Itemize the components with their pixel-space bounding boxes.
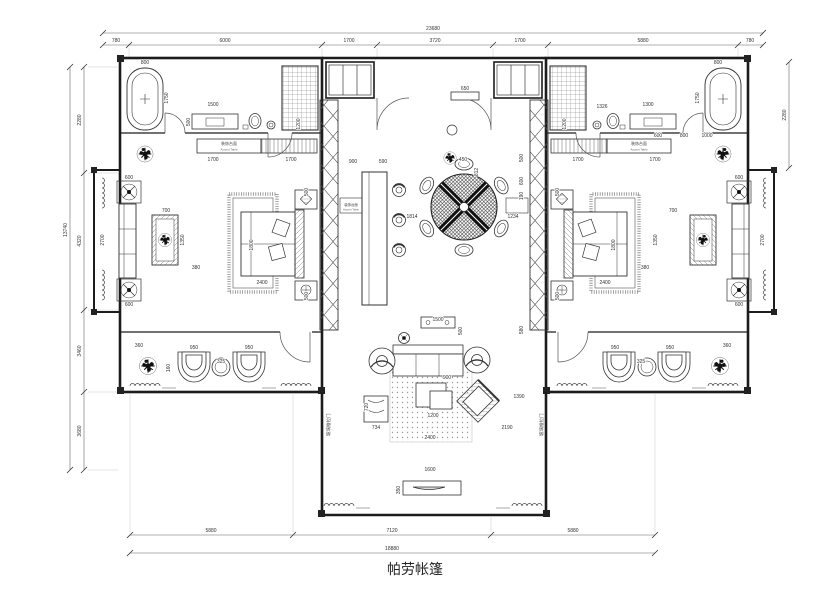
round-chair: [464, 347, 490, 373]
dimension-label: 780: [746, 38, 755, 44]
dimension-label: 1500: [432, 317, 443, 323]
dimension-label: 720: [364, 403, 370, 412]
dimension-label: 812: [474, 168, 480, 177]
dimension-label: 360: [723, 343, 732, 349]
accent-table-label-center: 装饰台面: [344, 202, 358, 207]
dimension-label: 1200: [427, 413, 438, 419]
dimension-label: 18880: [385, 546, 399, 552]
accent-table-sublabel-left: Accent Table: [220, 148, 237, 152]
round-chair: [369, 348, 395, 374]
floor-plan-drawing: 装饰台面 Accent Table 装饰台面 Accent Table 装饰台面…: [0, 0, 837, 592]
tv-cabinet: [403, 481, 461, 495]
dimension-label: 1700: [649, 157, 660, 163]
dimension-label: 500: [186, 118, 192, 127]
dimension-label: 500: [304, 188, 310, 197]
dimension-label: 3680: [77, 425, 83, 436]
dimension-label: 1600: [424, 467, 435, 473]
dimension-label: 325: [217, 359, 226, 365]
dimension-label: 800: [680, 133, 689, 139]
dimension-label: 500: [555, 188, 561, 197]
sliding-door-label-right: 玻璃推拉门: [538, 413, 545, 436]
dimension-label: 2400: [256, 280, 267, 286]
dimension-label: 4320: [77, 235, 83, 246]
dimension-label: 2190: [501, 425, 512, 431]
dimension-label: 600: [654, 133, 663, 139]
dimension-label: 500: [304, 292, 310, 301]
dimension-label: 1350: [180, 234, 186, 245]
dimension-label: 800: [714, 60, 723, 66]
dimension-label: 1500: [207, 102, 218, 108]
dimension-label: 950: [611, 345, 620, 351]
dimension-label: 700: [162, 208, 171, 214]
dimension-label: 500: [519, 154, 525, 163]
dimension-label: 450: [459, 157, 468, 163]
dining-set: [417, 158, 511, 256]
dimension-label: 2400: [599, 280, 610, 286]
dimension-label: 1700: [207, 157, 218, 163]
dimension-label: 2400: [424, 435, 435, 441]
dimension-label: 380: [192, 265, 201, 271]
dimension-label: 2280: [782, 109, 788, 120]
dimension-label: 2700: [760, 234, 766, 245]
dimension-label: 380: [641, 265, 650, 271]
dimension-label: 23680: [426, 26, 440, 32]
curtain-icon: [324, 504, 354, 507]
dimension-label: 1200: [562, 118, 568, 129]
sofa: [393, 345, 463, 376]
dimension-label: 1800: [611, 239, 617, 250]
dimension-label: 3460: [77, 345, 83, 356]
dimension-ticks: [67, 30, 792, 556]
dimension-label: 350: [396, 486, 402, 495]
dimension-label: 2700: [100, 234, 106, 245]
dimension-label: 2280: [77, 114, 83, 125]
dimension-label: 1000: [701, 133, 712, 139]
dimension-label: 1700: [572, 157, 583, 163]
dimension-label: 600: [519, 177, 525, 186]
drawing-title: 帕劳帐篷: [387, 562, 443, 578]
dimension-label: 1814: [406, 214, 417, 220]
dimension-label: 325: [637, 359, 646, 365]
entry-console: [451, 92, 479, 100]
entry-table: [447, 125, 457, 135]
dimension-label: 3720: [429, 38, 440, 44]
dimension-label: 5880: [205, 528, 216, 534]
dimension-label: 650: [461, 86, 470, 92]
dimension-label: 734: [372, 425, 381, 431]
dimension-label: 5880: [567, 528, 578, 534]
dimension-label: 600: [735, 175, 744, 181]
dimension-label: 600: [125, 302, 134, 308]
floor-plan-canvas: 装饰台面 Accent Table 装饰台面 Accent Table 装饰台面…: [0, 0, 837, 592]
dimension-annotations: 2368078060001700372017005880780588071205…: [63, 26, 788, 552]
dimension-label: 360: [135, 343, 144, 349]
dimension-label: 1750: [695, 92, 701, 103]
dimension-label: 1326: [596, 104, 607, 110]
sliding-door-label-left: 玻璃推拉门: [325, 413, 332, 436]
dimension-label: 500: [458, 327, 464, 336]
accent-table-label-left: 装饰台面: [221, 140, 237, 146]
dimension-label: 700: [669, 208, 678, 214]
plant-icon: [444, 152, 457, 165]
dimension-label: 950: [190, 345, 199, 351]
dimension-label: 950: [666, 345, 675, 351]
center-hall: [318, 58, 550, 517]
dimension-label: 800: [141, 60, 150, 66]
dimension-label: 13740: [63, 223, 69, 237]
dimension-label: 5880: [637, 38, 648, 44]
dimension-label: 7120: [386, 528, 397, 534]
dimension-label: 1750: [164, 92, 170, 103]
dimension-label: 950: [245, 345, 254, 351]
dimension-label: 900: [443, 375, 452, 381]
dimension-label: 190: [519, 192, 525, 201]
dimension-label: 580: [519, 326, 525, 335]
dimension-label: 1700: [514, 38, 525, 44]
dimension-label: 600: [735, 302, 744, 308]
dimension-label: 780: [112, 38, 121, 44]
dimension-label: 1234: [507, 214, 518, 220]
dimension-label: 1800: [249, 239, 255, 250]
dimension-label: 1390: [513, 394, 524, 400]
dimension-label: 500: [555, 292, 561, 301]
dimension-label: 1300: [642, 102, 653, 108]
curtain-icon: [512, 504, 542, 507]
dimension-label: 1700: [343, 38, 354, 44]
dimension-label: 590: [379, 159, 388, 165]
dimension-label: 1200: [296, 118, 302, 129]
accent-table-label-right: 装饰台面: [631, 140, 647, 146]
dimension-lines: [70, 33, 789, 553]
accent-table-sublabel-center: Accent Table: [343, 208, 359, 212]
dimension-label: 6000: [219, 38, 230, 44]
dimension-label: 900: [349, 159, 358, 165]
bar-counter: [362, 172, 406, 305]
dimension-label: 1700: [285, 157, 296, 163]
dimension-label: 600: [125, 175, 134, 181]
accent-table-sublabel-right: Accent Table: [630, 148, 647, 152]
floor-lamp: [399, 333, 410, 344]
dimension-label: 160: [166, 364, 172, 373]
dimension-label: 1350: [653, 234, 659, 245]
